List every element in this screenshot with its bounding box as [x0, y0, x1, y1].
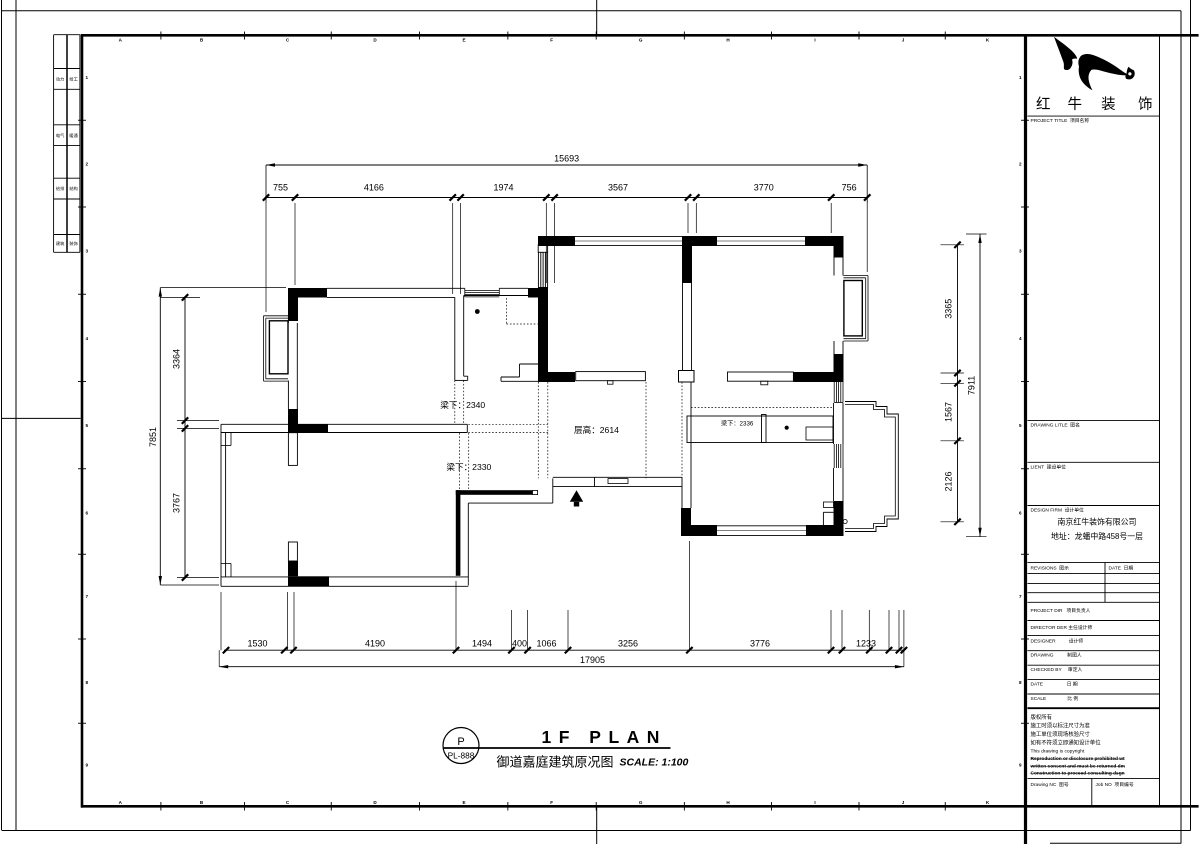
svg-text:DESIGNER: DESIGNER: [1031, 639, 1057, 645]
svg-text:G: G: [639, 800, 643, 805]
svg-text:15693: 15693: [554, 154, 579, 164]
svg-text:Drawing NC 图号: Drawing NC 图号: [1031, 782, 1069, 788]
svg-text:1066: 1066: [536, 639, 556, 649]
svg-text:建筑: 建筑: [56, 240, 65, 247]
svg-text:3: 3: [86, 249, 89, 254]
svg-text:7: 7: [1019, 594, 1022, 599]
svg-text:PL-888: PL-888: [448, 751, 475, 761]
svg-text:SCALE: SCALE: [1031, 696, 1047, 702]
svg-text:I: I: [814, 38, 815, 43]
svg-text:3770: 3770: [754, 183, 774, 193]
svg-text:动力: 动力: [56, 76, 64, 83]
svg-text:1F PLAN: 1F PLAN: [542, 727, 667, 747]
svg-text:E: E: [462, 800, 465, 805]
svg-text:7851: 7851: [148, 427, 158, 447]
svg-text:400: 400: [512, 639, 527, 649]
svg-text:1974: 1974: [493, 183, 513, 193]
svg-text:结构: 结构: [69, 185, 77, 192]
svg-text:7: 7: [86, 594, 89, 599]
svg-text:CHECKED BY: CHECKED BY: [1031, 667, 1063, 673]
svg-text:This drawing is copyright: This drawing is copyright: [1031, 749, 1085, 755]
svg-text:施工单位须现场核验尺寸: 施工单位须现场核验尺寸: [1031, 730, 1091, 738]
svg-text:Job NO 项目编号: Job NO 项目编号: [1096, 781, 1134, 788]
svg-text:梁下：2336: 梁下：2336: [721, 420, 754, 428]
svg-text:DATE 日期: DATE 日期: [1109, 565, 1134, 571]
svg-text:3767: 3767: [172, 493, 182, 513]
svg-text:7911: 7911: [967, 376, 977, 395]
svg-text:装: 装: [1101, 96, 1116, 113]
svg-text:6: 6: [1019, 511, 1022, 516]
svg-text:I: I: [814, 800, 815, 805]
svg-text:4: 4: [86, 336, 89, 341]
svg-text:5: 5: [86, 423, 89, 428]
svg-text:4190: 4190: [365, 639, 385, 649]
svg-text:2126: 2126: [944, 471, 954, 491]
svg-text:3776: 3776: [750, 639, 770, 649]
svg-text:御道嘉庭建筑原况图: 御道嘉庭建筑原况图: [497, 755, 614, 770]
svg-text:梁下：2340: 梁下：2340: [440, 399, 485, 410]
svg-text:DRAWING LITLE 图名: DRAWING LITLE 图名: [1031, 422, 1081, 429]
svg-text:3567: 3567: [608, 183, 628, 193]
svg-text:1494: 1494: [472, 639, 492, 649]
svg-text:制图人: 制图人: [1067, 652, 1082, 659]
svg-text:4166: 4166: [364, 183, 384, 193]
svg-text:755: 755: [273, 183, 288, 193]
svg-text:3365: 3365: [944, 299, 954, 319]
svg-text:梁下：2330: 梁下：2330: [446, 461, 491, 472]
svg-text:F: F: [550, 38, 553, 43]
svg-text:17905: 17905: [580, 655, 605, 665]
svg-text:J: J: [902, 38, 905, 43]
svg-text:南京红牛装饰有限公司: 南京红牛装饰有限公司: [1058, 517, 1137, 527]
svg-text:8: 8: [1019, 680, 1022, 685]
svg-text:装饰: 装饰: [69, 240, 77, 247]
svg-text:SCALE: 1:100: SCALE: 1:100: [620, 757, 689, 769]
svg-text:层高：2614: 层高：2614: [574, 424, 619, 435]
svg-text:Construction to proceed consul: Construction to proceed consulting dsgn: [1031, 771, 1125, 777]
svg-text:6: 6: [86, 511, 89, 516]
svg-text:审定人: 审定人: [1068, 666, 1083, 673]
svg-text:日 期: 日 期: [1067, 682, 1078, 688]
svg-text:9: 9: [1019, 763, 1022, 768]
svg-text:1233: 1233: [856, 639, 876, 649]
svg-text:P: P: [457, 736, 464, 748]
svg-text:1: 1: [86, 75, 89, 80]
svg-text:written consent and must be re: written consent and must be returned dm: [1030, 763, 1125, 769]
svg-text:1530: 1530: [247, 639, 267, 649]
svg-text:版权所有: 版权所有: [1031, 713, 1053, 721]
svg-text:2: 2: [1019, 162, 1022, 167]
svg-text:施工时须以标注尺寸为准: 施工时须以标注尺寸为准: [1031, 722, 1091, 730]
svg-text:F: F: [550, 800, 553, 805]
svg-text:比 例: 比 例: [1067, 695, 1078, 702]
svg-text:1567: 1567: [944, 402, 954, 422]
svg-text:REVISIONS 图示: REVISIONS 图示: [1031, 565, 1070, 571]
svg-text:4: 4: [1019, 336, 1022, 341]
svg-text:2: 2: [86, 162, 89, 167]
svg-text:LIENT 建设单位: LIENT 建设单位: [1031, 463, 1067, 470]
svg-text:3364: 3364: [172, 349, 182, 369]
svg-text:J: J: [902, 800, 905, 805]
svg-text:3: 3: [1019, 249, 1022, 254]
svg-text:Reproduction or disclosure pro: Reproduction or disclosure prohibited wt: [1031, 756, 1125, 762]
svg-text:暖通: 暖通: [69, 132, 78, 139]
svg-text:电气: 电气: [56, 132, 65, 138]
svg-text:8: 8: [86, 680, 89, 685]
svg-text:地址：龙蟠中路458号一层: 地址：龙蟠中路458号一层: [1051, 531, 1143, 541]
svg-text:PROJECT TITLE 项目名称: PROJECT TITLE 项目名称: [1031, 117, 1090, 124]
svg-text:DRAWING: DRAWING: [1031, 653, 1054, 659]
svg-text:如有不符须立即通知设计单位: 如有不符须立即通知设计单位: [1031, 739, 1102, 747]
svg-text:5: 5: [1019, 423, 1022, 428]
svg-text:E: E: [462, 38, 465, 43]
svg-text:给工: 给工: [69, 76, 77, 83]
svg-text:756: 756: [842, 183, 857, 193]
svg-text:9: 9: [86, 763, 89, 768]
svg-text:红: 红: [1036, 96, 1051, 113]
svg-text:1: 1: [1019, 75, 1022, 80]
svg-text:DATE: DATE: [1031, 682, 1043, 688]
svg-text:G: G: [639, 38, 643, 43]
svg-text:设计师: 设计师: [1069, 638, 1084, 645]
svg-text:DESIGN FIRM 设计单位: DESIGN FIRM 设计单位: [1031, 507, 1085, 514]
svg-text:DIRECTOR DER 主任设计师: DIRECTOR DER 主任设计师: [1031, 624, 1093, 631]
svg-text:饰: 饰: [1138, 96, 1153, 113]
svg-text:3256: 3256: [618, 639, 638, 649]
svg-text:牛: 牛: [1067, 96, 1082, 113]
svg-text:PROJECT DIR 项目负责人: PROJECT DIR 项目负责人: [1031, 607, 1091, 614]
svg-text:给排: 给排: [56, 185, 65, 192]
